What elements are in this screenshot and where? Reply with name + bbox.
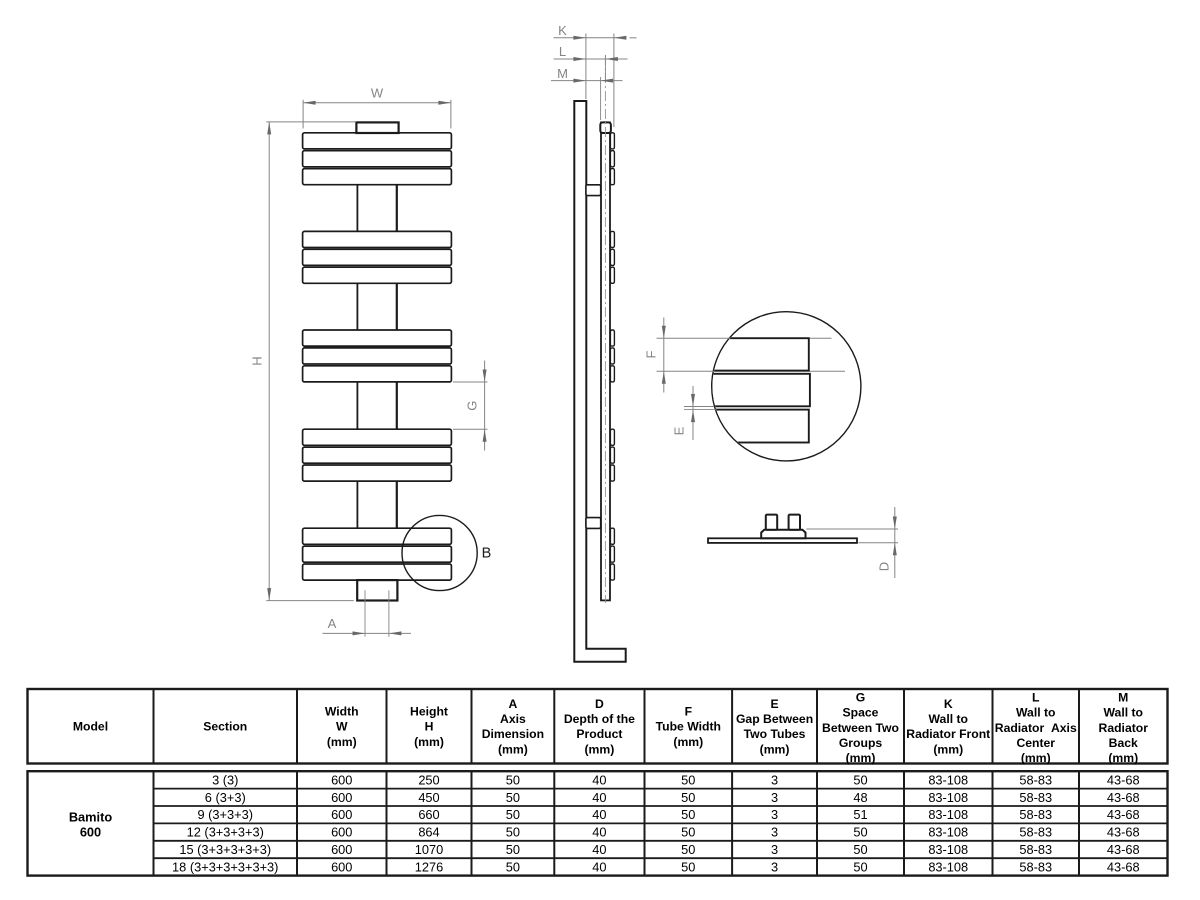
svg-text:Wall to: Wall to: [1104, 706, 1144, 720]
svg-text:58-83: 58-83: [1019, 825, 1052, 840]
svg-text:50: 50: [681, 790, 695, 805]
svg-text:Axis: Axis: [500, 712, 526, 726]
svg-text:50: 50: [681, 807, 695, 822]
svg-text:Gap Between: Gap Between: [736, 712, 813, 726]
svg-text:W: W: [371, 86, 384, 101]
svg-text:50: 50: [506, 842, 520, 857]
svg-text:43-68: 43-68: [1107, 859, 1140, 874]
svg-text:(mm): (mm): [760, 742, 790, 756]
svg-text:D: D: [595, 697, 604, 711]
svg-text:50: 50: [853, 859, 867, 874]
svg-text:A: A: [328, 616, 337, 631]
svg-text:58-83: 58-83: [1019, 842, 1052, 857]
svg-text:(mm): (mm): [1108, 751, 1138, 765]
svg-text:12 (3+3+3+3): 12 (3+3+3+3): [187, 825, 264, 840]
svg-text:(mm): (mm): [846, 751, 876, 765]
svg-text:F: F: [685, 704, 692, 718]
svg-text:6 (3+3): 6 (3+3): [205, 790, 246, 805]
svg-text:1276: 1276: [415, 859, 443, 874]
svg-text:40: 40: [592, 790, 606, 805]
svg-text:15 (3+3+3+3+3): 15 (3+3+3+3+3): [179, 842, 271, 857]
svg-text:3: 3: [771, 772, 778, 787]
svg-text:A: A: [508, 697, 517, 711]
svg-text:83-108: 83-108: [928, 807, 968, 822]
svg-text:Wall to: Wall to: [1016, 706, 1056, 720]
svg-text:50: 50: [506, 859, 520, 874]
svg-text:L: L: [559, 44, 566, 59]
svg-text:450: 450: [418, 790, 439, 805]
svg-text:58-83: 58-83: [1019, 772, 1052, 787]
svg-text:83-108: 83-108: [928, 825, 968, 840]
svg-text:K: K: [944, 697, 953, 711]
svg-text:50: 50: [853, 842, 867, 857]
svg-text:E: E: [672, 426, 687, 435]
svg-text:3: 3: [771, 825, 778, 840]
svg-text:(mm): (mm): [673, 735, 703, 749]
svg-text:58-83: 58-83: [1019, 807, 1052, 822]
svg-text:Height: Height: [410, 704, 448, 718]
svg-text:Dimension: Dimension: [482, 727, 544, 741]
svg-text:50: 50: [681, 825, 695, 840]
svg-text:40: 40: [592, 772, 606, 787]
svg-text:600: 600: [331, 790, 352, 805]
svg-text:B: B: [482, 546, 492, 562]
svg-text:600: 600: [331, 772, 352, 787]
svg-text:50: 50: [681, 859, 695, 874]
svg-text:Model: Model: [73, 720, 108, 734]
svg-text:40: 40: [592, 825, 606, 840]
svg-text:Back: Back: [1109, 736, 1138, 750]
svg-text:M: M: [1118, 690, 1128, 704]
svg-text:Between Two: Between Two: [822, 721, 899, 735]
svg-text:58-83: 58-83: [1019, 859, 1052, 874]
svg-text:(mm): (mm): [414, 735, 444, 749]
svg-text:600: 600: [331, 825, 352, 840]
svg-text:50: 50: [506, 772, 520, 787]
svg-text:40: 40: [592, 859, 606, 874]
svg-text:864: 864: [418, 825, 439, 840]
svg-text:83-108: 83-108: [928, 859, 968, 874]
svg-text:660: 660: [418, 807, 439, 822]
svg-text:Width: Width: [325, 704, 359, 718]
svg-text:G: G: [465, 401, 480, 411]
svg-text:3: 3: [771, 790, 778, 805]
svg-text:L: L: [1032, 690, 1040, 704]
svg-text:83-108: 83-108: [928, 842, 968, 857]
svg-text:3: 3: [771, 859, 778, 874]
svg-text:3: 3: [771, 807, 778, 822]
svg-text:(mm): (mm): [585, 742, 615, 756]
svg-text:K: K: [558, 23, 567, 38]
svg-text:(mm): (mm): [327, 735, 357, 749]
svg-text:9 (3+3+3): 9 (3+3+3): [198, 807, 254, 822]
svg-text:250: 250: [418, 772, 439, 787]
svg-text:83-108: 83-108: [928, 772, 968, 787]
svg-text:Center: Center: [1016, 736, 1055, 750]
svg-text:600: 600: [331, 859, 352, 874]
svg-text:(mm): (mm): [498, 742, 528, 756]
svg-text:W: W: [336, 720, 348, 734]
svg-text:F: F: [644, 350, 659, 358]
svg-text:43-68: 43-68: [1107, 790, 1140, 805]
svg-text:50: 50: [506, 790, 520, 805]
svg-text:Tube Width: Tube Width: [656, 720, 721, 734]
svg-text:50: 50: [853, 772, 867, 787]
svg-text:Product: Product: [576, 727, 622, 741]
svg-text:40: 40: [592, 842, 606, 857]
svg-text:Groups: Groups: [839, 736, 883, 750]
svg-text:600: 600: [80, 825, 101, 840]
svg-text:50: 50: [853, 825, 867, 840]
svg-text:H: H: [250, 356, 265, 365]
svg-text:Space: Space: [843, 706, 879, 720]
svg-text:50: 50: [681, 772, 695, 787]
svg-text:H: H: [425, 720, 434, 734]
svg-text:48: 48: [853, 790, 867, 805]
svg-text:43-68: 43-68: [1107, 772, 1140, 787]
svg-text:1070: 1070: [415, 842, 443, 857]
svg-text:G: G: [856, 690, 865, 704]
svg-text:40: 40: [592, 807, 606, 822]
svg-text:Two Tubes: Two Tubes: [744, 727, 806, 741]
svg-text:58-83: 58-83: [1019, 790, 1052, 805]
svg-text:E: E: [770, 697, 778, 711]
svg-text:Radiator Axis: Radiator Axis: [995, 721, 1077, 735]
svg-text:3: 3: [771, 842, 778, 857]
svg-text:(mm): (mm): [933, 742, 963, 756]
svg-text:50: 50: [681, 842, 695, 857]
svg-text:51: 51: [853, 807, 867, 822]
svg-text:43-68: 43-68: [1107, 842, 1140, 857]
svg-text:(mm): (mm): [1021, 751, 1051, 765]
svg-text:Radiator Front: Radiator Front: [906, 727, 990, 741]
svg-text:Bamito: Bamito: [69, 810, 113, 825]
svg-text:D: D: [877, 562, 892, 571]
svg-text:M: M: [557, 66, 568, 81]
svg-text:Section: Section: [203, 720, 247, 734]
svg-text:600: 600: [331, 842, 352, 857]
svg-text:3 (3): 3 (3): [212, 772, 238, 787]
svg-text:Radiator: Radiator: [1099, 721, 1149, 735]
svg-text:Depth of the: Depth of the: [564, 712, 635, 726]
svg-text:600: 600: [331, 807, 352, 822]
svg-text:50: 50: [506, 825, 520, 840]
svg-text:43-68: 43-68: [1107, 807, 1140, 822]
svg-text:18 (3+3+3+3+3+3): 18 (3+3+3+3+3+3): [172, 859, 278, 874]
svg-text:50: 50: [506, 807, 520, 822]
svg-text:83-108: 83-108: [928, 790, 968, 805]
svg-text:43-68: 43-68: [1107, 825, 1140, 840]
svg-text:Wall to: Wall to: [929, 712, 969, 726]
